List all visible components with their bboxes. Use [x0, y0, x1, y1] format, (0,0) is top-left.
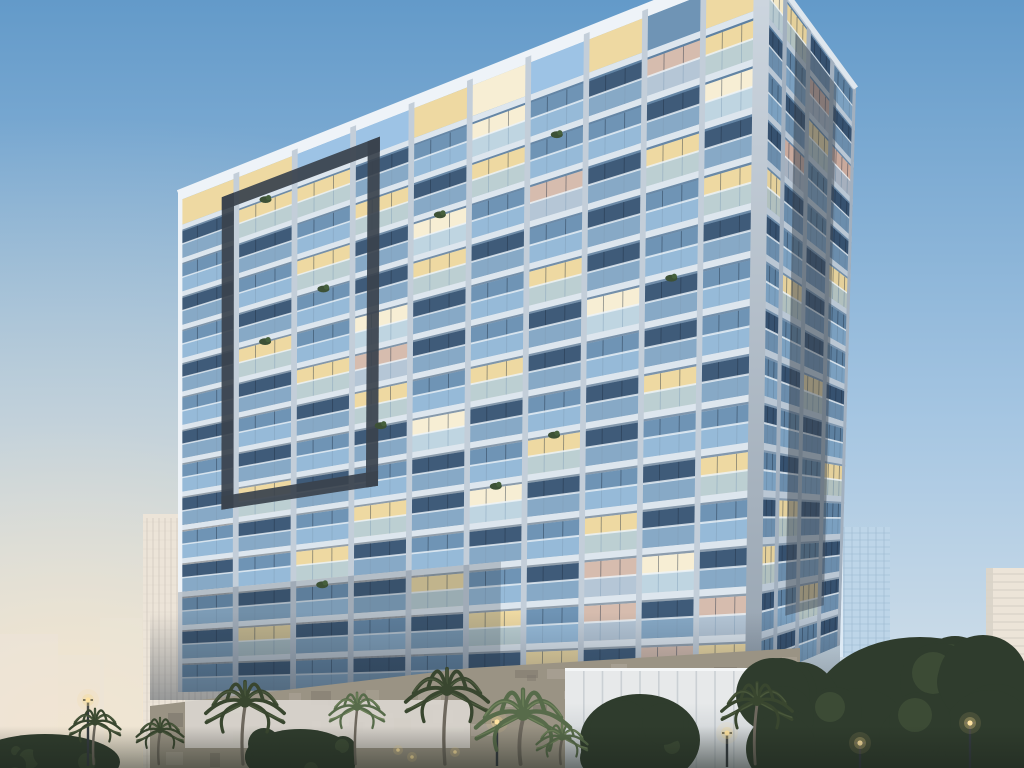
balcony-plant [440, 210, 445, 215]
tree-highlight [815, 692, 845, 722]
balcony-plant [266, 195, 271, 200]
balcony-plant [381, 421, 386, 426]
stone-texture [547, 669, 568, 679]
lamp-light [967, 720, 972, 725]
balcony-plant [557, 130, 562, 135]
stone-texture [289, 693, 301, 701]
foreground-shade [0, 726, 1024, 768]
palm-crown [239, 696, 250, 707]
dark-feature-frame [366, 137, 380, 488]
balcony-plant [554, 431, 559, 436]
balcony-plant [323, 580, 328, 585]
balcony-plant [496, 482, 501, 487]
stone-texture [527, 675, 536, 681]
palm-crown [752, 696, 762, 706]
balcony-plant [672, 274, 677, 279]
palm-crown [353, 703, 361, 711]
palm-crown [441, 684, 453, 696]
architectural-rendering [0, 0, 1024, 768]
balcony-plant [324, 284, 329, 289]
dark-feature-frame [221, 193, 234, 510]
rendering-stage [0, 0, 1024, 768]
balcony-plant [266, 337, 271, 342]
palm-crown [516, 707, 529, 720]
palm-crown [91, 718, 98, 725]
lamp-light [85, 697, 90, 702]
